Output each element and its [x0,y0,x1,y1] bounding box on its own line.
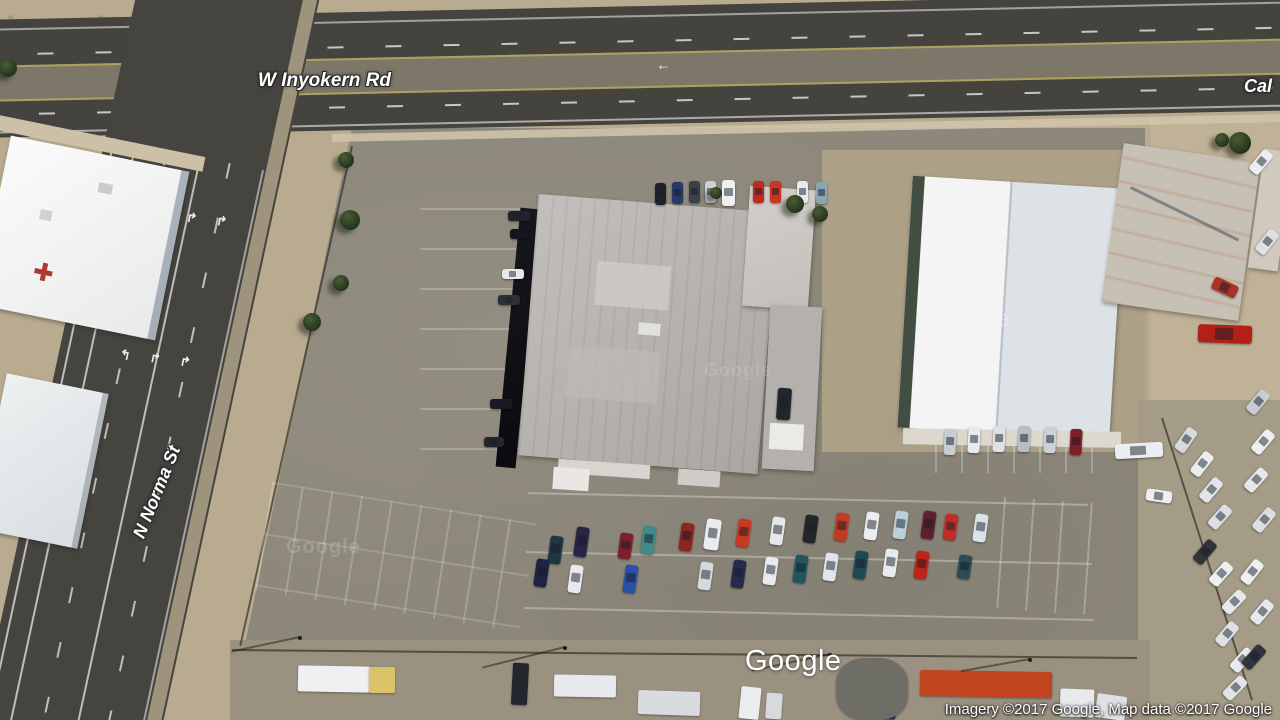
ghost-watermark: Google [286,536,361,559]
road-label-partial: Cal [1244,76,1272,97]
road-label-w-inyokern-rd: W Inyokern Rd [258,70,391,92]
ghost-watermark: Google [928,306,1010,332]
satellite-map-viewport[interactable]: ← ↰ ↱ ↱ ↰ ↱ ↱ [0,0,1280,720]
google-watermark: Google [745,645,842,678]
ghost-watermark: Google [704,360,772,381]
ghost-watermarks-layer: GoogleGoogleGoogle [0,0,1280,720]
map-attribution: Imagery ©2017 Google, Map data ©2017 Goo… [945,701,1272,718]
